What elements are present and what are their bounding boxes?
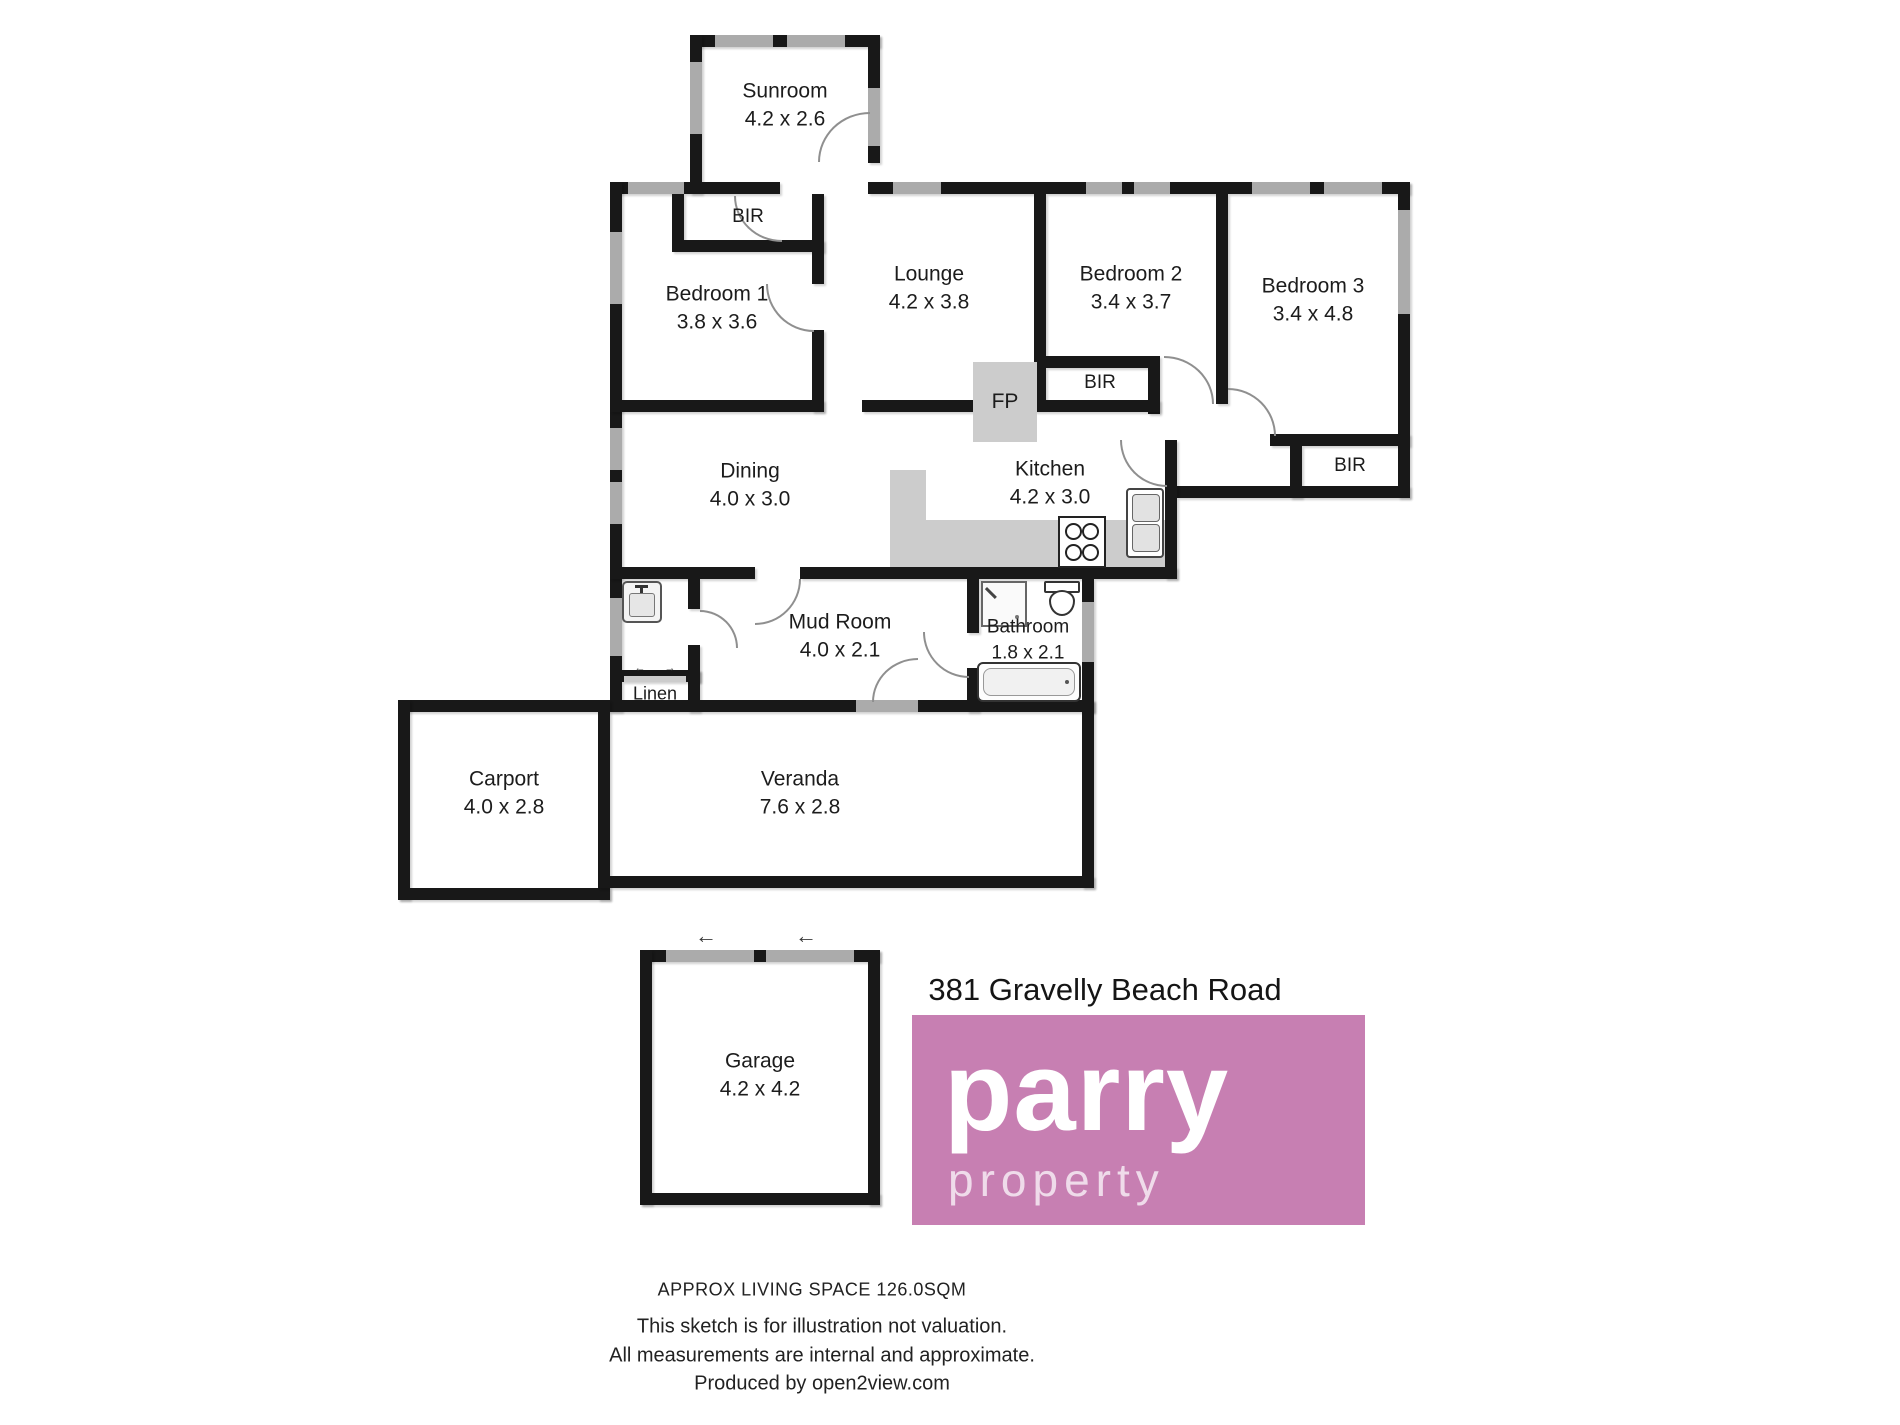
wall	[862, 400, 973, 412]
room-label-bathroom: Bathroom 1.8 x 2.1	[987, 614, 1069, 665]
bathtub	[977, 662, 1081, 702]
disclaimer-line: This sketch is for illustration not valu…	[637, 1316, 1007, 1339]
wall	[640, 1193, 880, 1205]
room-dims: 4.0 x 2.1	[789, 637, 892, 665]
room-label-kitchen: Kitchen 4.2 x 3.0	[1010, 456, 1091, 513]
tap-icon	[635, 585, 648, 588]
room-label-mudroom: Mud Room 4.0 x 2.1	[789, 609, 892, 666]
stove	[1058, 516, 1106, 568]
window	[1398, 210, 1410, 314]
door-arc	[1120, 440, 1167, 487]
wall	[598, 876, 1094, 888]
parry-property-logo: parry property	[912, 1015, 1365, 1225]
wall	[398, 888, 610, 900]
room-dims: 7.6 x 2.8	[760, 794, 841, 822]
wall	[812, 194, 824, 284]
room-name: Carport	[464, 766, 545, 794]
wall	[1216, 194, 1228, 404]
wall	[672, 194, 684, 240]
wall	[1046, 356, 1148, 368]
room-name: Kitchen	[1010, 456, 1091, 484]
wall	[688, 579, 700, 609]
wall	[610, 567, 755, 579]
window	[610, 598, 622, 656]
room-name: Bedroom 3	[1262, 273, 1365, 301]
wall	[610, 400, 824, 412]
window	[610, 428, 622, 470]
sink-basin	[1132, 524, 1160, 552]
burner-icon	[1082, 523, 1099, 540]
room-label-bedroom2: Bedroom 2 3.4 x 3.7	[1080, 261, 1183, 318]
window	[610, 482, 622, 524]
door-arc	[1228, 388, 1276, 436]
fireplace-label: FP	[992, 390, 1019, 414]
trough-basin	[629, 593, 655, 617]
laundry-trough	[622, 581, 662, 623]
floorplan-page: FP ← → ← ← Sunroom 4.2 x 2.6	[0, 0, 1900, 1425]
window	[1324, 182, 1382, 194]
wall	[398, 700, 610, 712]
window	[1134, 182, 1170, 194]
sink-basin	[1132, 494, 1160, 522]
living-space-note: APPROX LIVING SPACE 126.0SQM	[658, 1280, 967, 1301]
closet-label-linen: Linen	[633, 684, 677, 705]
window	[715, 35, 773, 47]
window	[1252, 182, 1310, 194]
wall	[398, 700, 410, 900]
window	[787, 35, 845, 47]
room-dims: 4.2 x 3.8	[889, 289, 970, 317]
wall	[1270, 434, 1410, 446]
room-label-veranda: Veranda 7.6 x 2.8	[760, 766, 841, 823]
garage-roller-door	[666, 950, 754, 962]
room-dims: 1.8 x 2.1	[987, 640, 1069, 666]
kitchen-sink	[1126, 488, 1164, 558]
room-label-carport: Carport 4.0 x 2.8	[464, 766, 545, 823]
arrow-icon: ←	[635, 662, 646, 674]
wall	[640, 950, 652, 1205]
brand-subname: property	[948, 1153, 1165, 1207]
room-label-dining: Dining 4.0 x 3.0	[710, 458, 791, 515]
room-name: Dining	[710, 458, 791, 486]
room-dims: 4.0 x 2.8	[464, 794, 545, 822]
room-dims: 4.2 x 2.6	[742, 106, 827, 134]
burner-icon	[1065, 523, 1082, 540]
bathtub-inner	[983, 668, 1075, 696]
room-name: Bedroom 2	[1080, 261, 1183, 289]
wall	[800, 567, 1177, 579]
room-label-bedroom1: Bedroom 1 3.8 x 3.6	[666, 281, 769, 338]
door-arc	[923, 632, 969, 678]
room-name: Mud Room	[789, 609, 892, 637]
arrow-icon: ←	[795, 923, 817, 949]
door-arc	[1164, 356, 1214, 404]
window	[893, 182, 941, 194]
property-address: 381 Gravelly Beach Road	[928, 972, 1281, 1008]
closet-label-bir3: BIR	[1334, 455, 1366, 477]
wall	[1046, 400, 1160, 412]
room-dims: 4.2 x 4.2	[720, 1076, 801, 1104]
window	[610, 232, 622, 304]
window	[1086, 182, 1122, 194]
shower-head-icon	[985, 587, 997, 599]
room-dims: 4.2 x 3.0	[1010, 484, 1091, 512]
room-label-bedroom3: Bedroom 3 3.4 x 4.8	[1262, 273, 1365, 330]
room-dims: 3.4 x 4.8	[1262, 301, 1365, 329]
room-dims: 3.4 x 3.7	[1080, 289, 1183, 317]
arrow-icon: ←	[695, 923, 717, 949]
brand-name: parry	[944, 1027, 1229, 1156]
toilet-bowl	[1049, 590, 1075, 616]
disclaimer-line: All measurements are internal and approx…	[609, 1345, 1035, 1368]
burner-icon	[1082, 544, 1099, 561]
room-name: Bedroom 1	[666, 281, 769, 309]
room-name: Bathroom	[987, 614, 1069, 640]
produced-by-note: Produced by open2view.com	[694, 1373, 950, 1396]
kitchen-counter	[890, 520, 1165, 567]
room-dims: 4.0 x 3.0	[710, 486, 791, 514]
garage-roller-door	[766, 950, 854, 962]
wall	[672, 240, 824, 252]
wall	[868, 950, 880, 1205]
window	[628, 182, 684, 194]
room-dims: 3.8 x 3.6	[666, 309, 769, 337]
room-label-sunroom: Sunroom 4.2 x 2.6	[742, 78, 827, 135]
toilet	[1044, 581, 1080, 615]
room-name: Lounge	[889, 261, 970, 289]
wall	[967, 579, 979, 633]
wall	[1082, 700, 1094, 888]
room-label-lounge: Lounge 4.2 x 3.8	[889, 261, 970, 318]
room-name: Sunroom	[742, 78, 827, 106]
window	[690, 62, 702, 134]
door-arc	[700, 610, 738, 648]
door-arc	[766, 284, 814, 332]
arrow-icon: →	[665, 662, 676, 674]
linen-shelf	[624, 676, 686, 682]
room-name: Veranda	[760, 766, 841, 794]
closet-label-bir2: BIR	[1084, 372, 1116, 394]
burner-icon	[1065, 544, 1082, 561]
room-label-garage: Garage 4.2 x 4.2	[720, 1048, 801, 1105]
window	[1082, 602, 1094, 662]
wall	[598, 700, 610, 900]
drain-icon	[1065, 680, 1069, 684]
room-name: Garage	[720, 1048, 801, 1076]
closet-label-bir1: BIR	[732, 206, 764, 228]
wall	[1177, 486, 1410, 498]
